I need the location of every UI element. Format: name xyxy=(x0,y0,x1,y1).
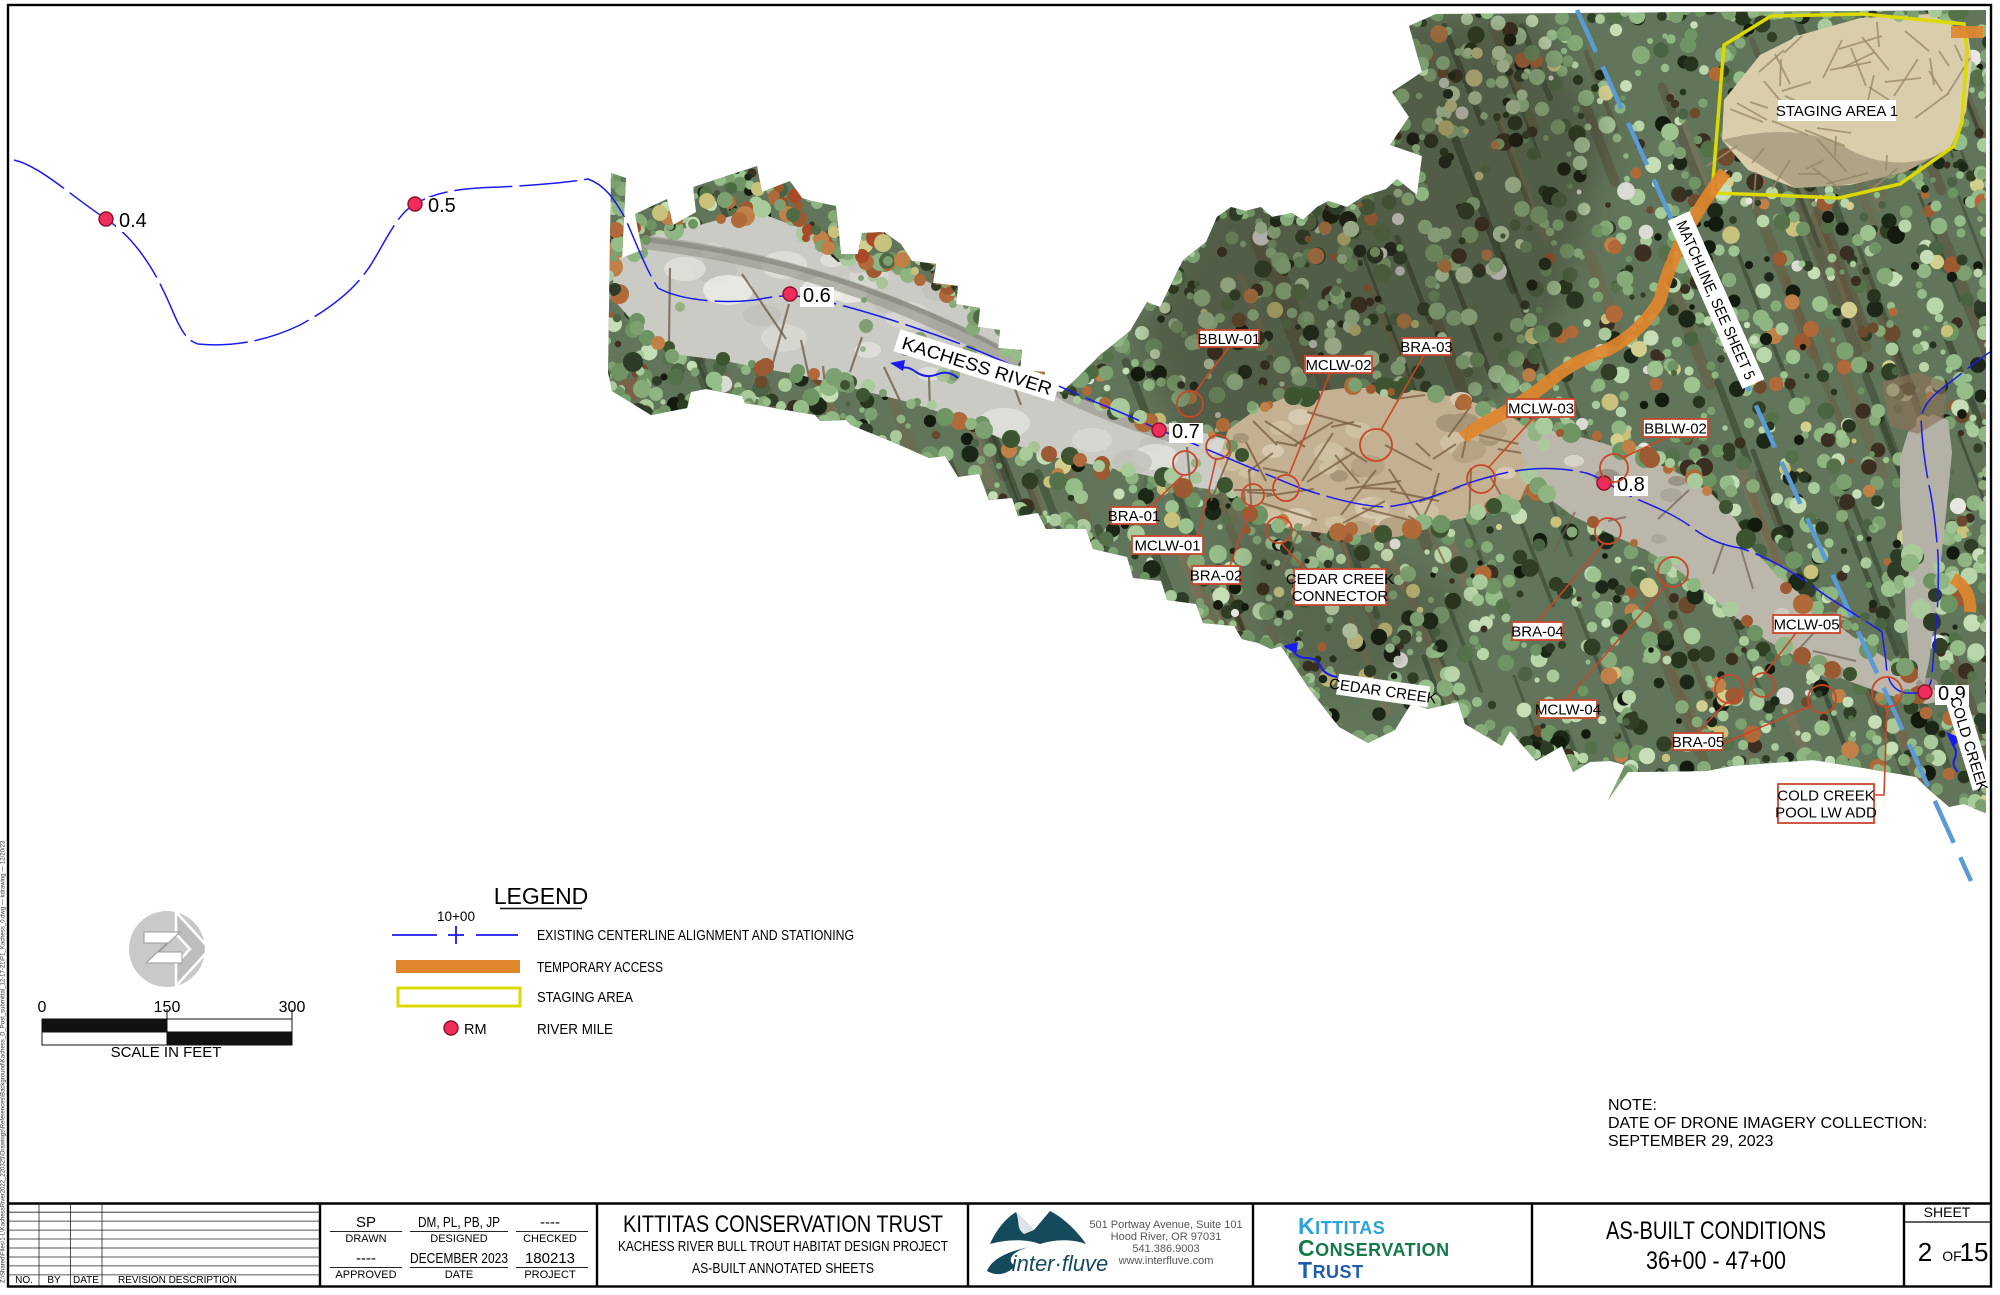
svg-text:APPROVED: APPROVED xyxy=(335,1269,396,1281)
svg-text:36+00 - 47+00: 36+00 - 47+00 xyxy=(1646,1247,1786,1275)
svg-text:COLD CREEK: COLD CREEK xyxy=(1777,787,1875,804)
svg-text:NO.: NO. xyxy=(15,1275,33,1286)
svg-text:inter·fluve: inter·fluve xyxy=(1012,1251,1109,1276)
svg-text:2: 2 xyxy=(1918,1237,1932,1267)
svg-text:NOTE:: NOTE: xyxy=(1608,1097,1657,1114)
svg-text:KACHESS RIVER BULL TROUT HABIT: KACHESS RIVER BULL TROUT HABITAT DESIGN … xyxy=(618,1238,948,1255)
svg-text:AS-BUILT ANNOTATED SHEETS: AS-BUILT ANNOTATED SHEETS xyxy=(692,1260,874,1277)
svg-text:DATE OF DRONE IMAGERY COLLECTI: DATE OF DRONE IMAGERY COLLECTION: xyxy=(1608,1115,1927,1132)
svg-text:Hood River, OR 97031: Hood River, OR 97031 xyxy=(1111,1231,1222,1243)
svg-text:DRAWN: DRAWN xyxy=(345,1233,386,1245)
svg-text:BRA-05: BRA-05 xyxy=(1672,734,1725,751)
svg-text:15: 15 xyxy=(1960,1237,1989,1267)
svg-text:www.interfluve.com: www.interfluve.com xyxy=(1118,1255,1214,1267)
svg-text:RIVER MILE: RIVER MILE xyxy=(537,1022,613,1038)
svg-text:180213: 180213 xyxy=(525,1250,575,1267)
svg-text:DATE: DATE xyxy=(73,1275,99,1286)
svg-text:PROJECT: PROJECT xyxy=(524,1269,576,1281)
svg-text:BRA-01: BRA-01 xyxy=(1108,508,1161,525)
svg-text:DECEMBER 2023: DECEMBER 2023 xyxy=(410,1250,508,1267)
svg-text:MCLW-01: MCLW-01 xyxy=(1134,537,1200,554)
svg-text:0.6: 0.6 xyxy=(803,285,831,307)
svg-text:SP: SP xyxy=(356,1214,376,1231)
svg-text:BBLW-02: BBLW-02 xyxy=(1644,420,1707,437)
svg-text:AS-BUILT CONDITIONS: AS-BUILT CONDITIONS xyxy=(1606,1217,1826,1245)
svg-text:MCLW-02: MCLW-02 xyxy=(1305,357,1371,374)
svg-text:----: ---- xyxy=(540,1214,560,1231)
svg-text:STAGING AREA 1: STAGING AREA 1 xyxy=(1776,103,1898,120)
svg-text:SEPTEMBER 29, 2023: SEPTEMBER 29, 2023 xyxy=(1608,1133,1774,1150)
svg-text:DESIGNED: DESIGNED xyxy=(430,1233,488,1245)
svg-text:BBLW-01: BBLW-01 xyxy=(1198,331,1261,348)
svg-text:CONNECTOR: CONNECTOR xyxy=(1292,588,1389,605)
svg-text:BY: BY xyxy=(47,1275,61,1286)
svg-text:BRA-03: BRA-03 xyxy=(1400,339,1453,356)
svg-text:LEGEND: LEGEND xyxy=(494,883,589,909)
svg-text:MCLW-03: MCLW-03 xyxy=(1508,400,1574,417)
svg-text:CHECKED: CHECKED xyxy=(523,1233,577,1245)
svg-text:REVISION DESCRIPTION: REVISION DESCRIPTION xyxy=(118,1275,237,1286)
svg-text:0: 0 xyxy=(38,999,47,1016)
svg-text:BRA-04: BRA-04 xyxy=(1511,623,1564,640)
svg-text:BRA-02: BRA-02 xyxy=(1190,567,1243,584)
svg-text:MCLW-05: MCLW-05 xyxy=(1773,616,1839,633)
svg-text:----: ---- xyxy=(356,1250,376,1267)
svg-text:RM: RM xyxy=(464,1022,487,1038)
svg-text:KITTITAS CONSERVATION TRUST: KITTITAS CONSERVATION TRUST xyxy=(623,1211,943,1238)
svg-text:541.386.9003: 541.386.9003 xyxy=(1132,1243,1199,1255)
svg-text:MCLW-04: MCLW-04 xyxy=(1535,701,1601,718)
svg-text:CEDAR CREEK: CEDAR CREEK xyxy=(1286,571,1394,588)
svg-text:SHEET: SHEET xyxy=(1924,1204,1971,1220)
svg-text:0.5: 0.5 xyxy=(428,195,456,217)
svg-text:TEMPORARY ACCESS: TEMPORARY ACCESS xyxy=(537,960,663,976)
svg-text:DATE: DATE xyxy=(445,1269,474,1281)
svg-text:SCALE IN FEET: SCALE IN FEET xyxy=(111,1044,222,1061)
svg-text:0.7: 0.7 xyxy=(1172,421,1200,443)
svg-text:10+00: 10+00 xyxy=(437,909,475,924)
svg-text:0.8: 0.8 xyxy=(1617,474,1645,496)
svg-text:STAGING AREA: STAGING AREA xyxy=(537,990,633,1006)
svg-text:POOL LW ADD: POOL LW ADD xyxy=(1775,804,1877,821)
svg-text:DM, PL, PB, JP: DM, PL, PB, JP xyxy=(418,1214,500,1231)
svg-text:501 Portway Avenue, Suite 101: 501 Portway Avenue, Suite 101 xyxy=(1089,1219,1242,1231)
svg-text:EXISTING CENTERLINE ALIGNMENT: EXISTING CENTERLINE ALIGNMENT AND STATIO… xyxy=(537,928,854,944)
svg-text:Z:\Shared\Files\1-L\KachessRiv: Z:\Shared\Files\1-L\KachessRiver2022_220… xyxy=(1,840,7,1283)
svg-text:0.4: 0.4 xyxy=(119,210,147,232)
